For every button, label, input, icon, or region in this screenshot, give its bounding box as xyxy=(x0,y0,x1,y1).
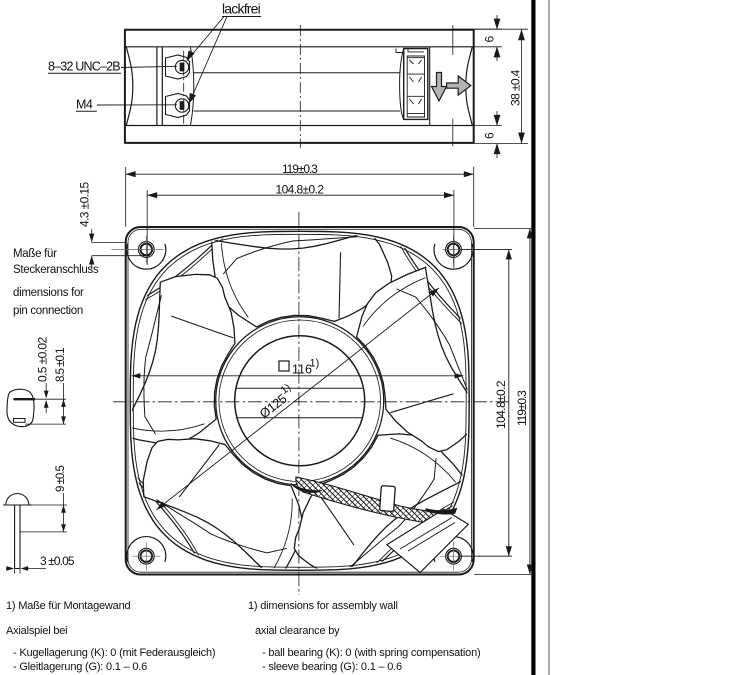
svg-text:9 ±0.5: 9 ±0.5 xyxy=(55,466,67,492)
svg-text:119±0.3: 119±0.3 xyxy=(515,390,529,426)
svg-text:Steckeranschluss: Steckeranschluss xyxy=(13,264,99,276)
svg-text:8–32 UNC–2B: 8–32 UNC–2B xyxy=(48,60,120,74)
svg-text:6: 6 xyxy=(483,132,497,139)
svg-text:lackfrei: lackfrei xyxy=(222,1,261,17)
svg-text:1): 1) xyxy=(310,358,320,370)
svg-text:pin connection: pin connection xyxy=(13,305,83,317)
svg-text:104.8±0.2: 104.8±0.2 xyxy=(276,182,325,196)
svg-text:6: 6 xyxy=(483,36,497,43)
svg-text:3 ±0.05: 3 ±0.05 xyxy=(40,554,75,568)
svg-text:119±0.3: 119±0.3 xyxy=(282,162,318,176)
svg-text:4.3 ±0.15: 4.3 ±0.15 xyxy=(78,182,92,227)
svg-text:- ball bearing (K): 0 (with sp: - ball bearing (K): 0 (with spring compe… xyxy=(262,647,480,659)
svg-text:1) dimensions for assembly wal: 1) dimensions for assembly wall xyxy=(248,600,398,612)
svg-text:- sleeve bearing (G): 0.1 – 0.: - sleeve bearing (G): 0.1 – 0.6 xyxy=(262,661,402,673)
svg-text:M4: M4 xyxy=(76,98,93,112)
svg-text:0.5 ±0.02: 0.5 ±0.02 xyxy=(36,337,50,382)
svg-text:axial clearance by: axial clearance by xyxy=(255,625,340,637)
svg-text:38 ±0.4: 38 ±0.4 xyxy=(509,69,523,106)
svg-text:dimensions for: dimensions for xyxy=(13,287,84,299)
svg-text:8.5 ±0.1: 8.5 ±0.1 xyxy=(55,348,67,382)
svg-text:Maße für: Maße für xyxy=(13,248,57,260)
svg-text:Axialspiel bei: Axialspiel bei xyxy=(6,625,67,637)
svg-text:- Gleitlagerung (G): 0.1 – 0.6: - Gleitlagerung (G): 0.1 – 0.6 xyxy=(13,661,147,673)
svg-text:104.8±0.2: 104.8±0.2 xyxy=(494,380,508,429)
svg-text:1) Maße für Montagewand: 1) Maße für Montagewand xyxy=(6,600,130,612)
svg-text:- Kugellagerung (K): 0 (mit Fe: - Kugellagerung (K): 0 (mit Federausglei… xyxy=(13,647,215,659)
